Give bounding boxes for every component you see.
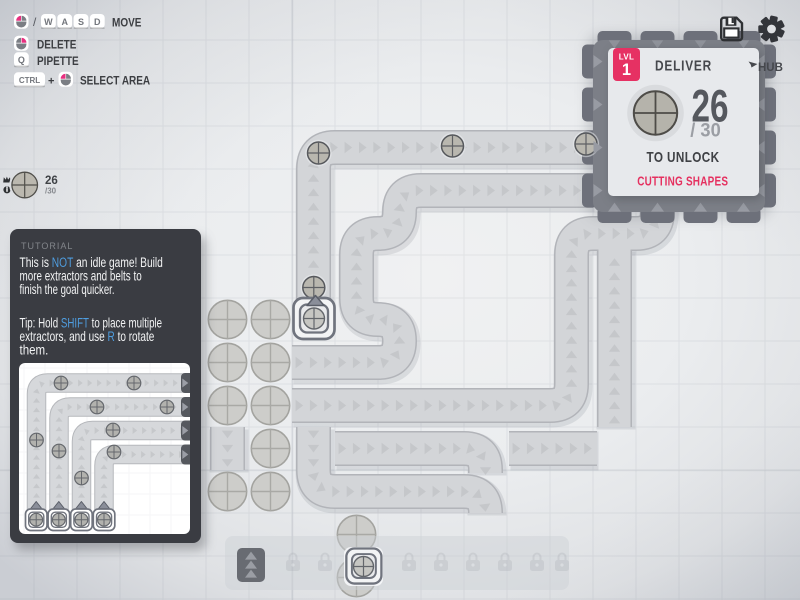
- svg-text:DELIVER: DELIVER: [655, 58, 712, 75]
- svg-text:SELECT AREA: SELECT AREA: [80, 75, 150, 88]
- svg-text:TO UNLOCK: TO UNLOCK: [647, 149, 720, 166]
- svg-text:MOVE: MOVE: [112, 16, 141, 29]
- svg-text:+: +: [48, 75, 54, 87]
- svg-text:DELETE: DELETE: [37, 38, 76, 51]
- svg-text:26: 26: [45, 175, 58, 187]
- svg-text:Q: Q: [18, 55, 25, 65]
- svg-text:CTRL: CTRL: [19, 76, 40, 85]
- svg-text:CUTTING SHAPES: CUTTING SHAPES: [637, 174, 728, 189]
- svg-text:W: W: [44, 17, 53, 27]
- svg-text:HUB: HUB: [758, 62, 783, 74]
- svg-text:PIPETTE: PIPETTE: [37, 55, 79, 68]
- svg-text:1: 1: [622, 61, 631, 79]
- svg-text:them.: them.: [20, 342, 49, 357]
- svg-text:/30: /30: [45, 187, 57, 196]
- svg-text:D: D: [94, 17, 101, 27]
- svg-text:finish the goal quicker.: finish the goal quicker.: [20, 282, 115, 297]
- svg-text:/ 30: / 30: [690, 121, 721, 142]
- svg-text:TUTORIAL: TUTORIAL: [21, 241, 73, 251]
- svg-text:A: A: [61, 17, 68, 27]
- svg-text:S: S: [78, 17, 84, 27]
